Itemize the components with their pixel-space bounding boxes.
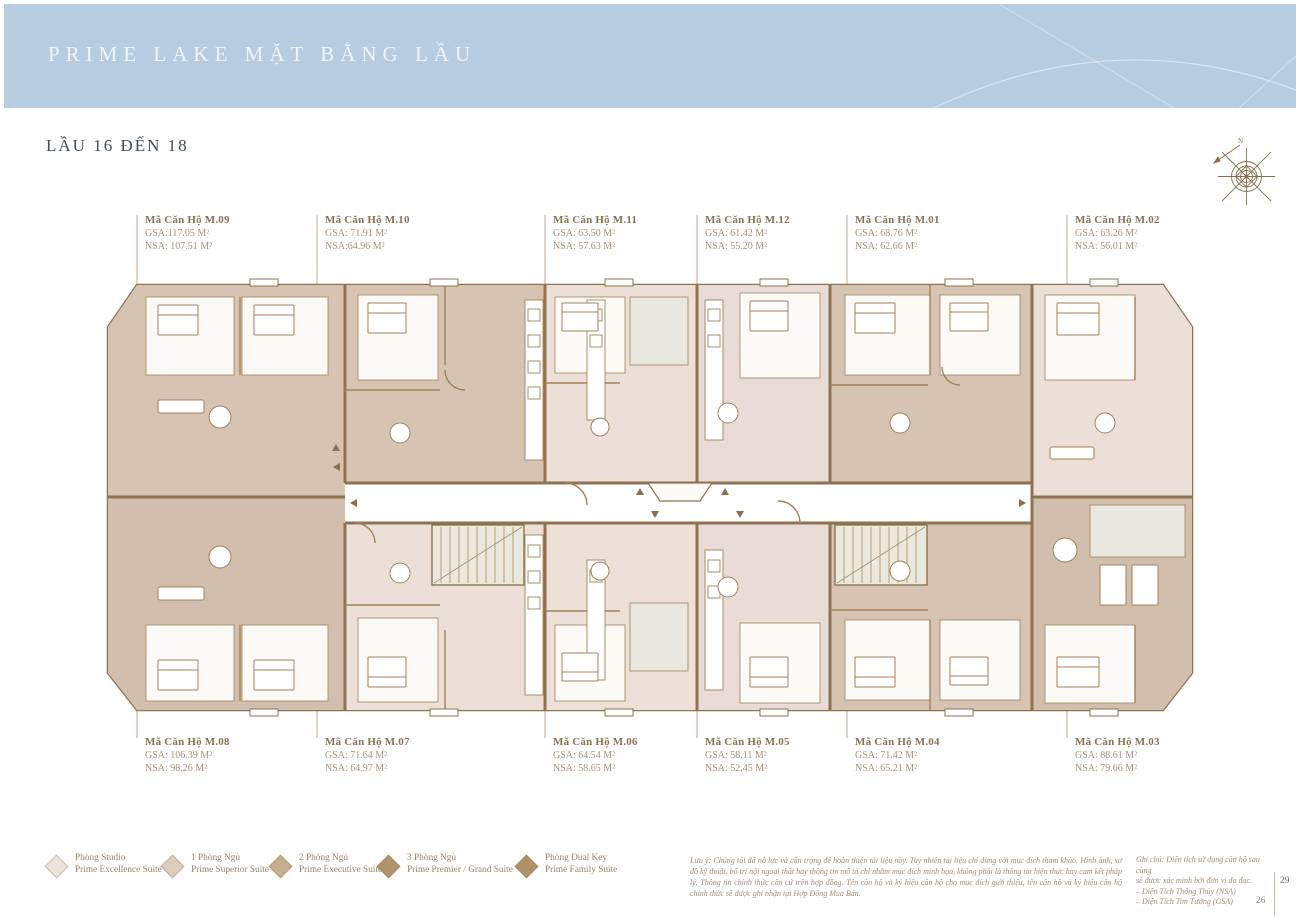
page-title: PRIME LAKE MẶT BẰNG LẦU <box>48 42 476 67</box>
unit-label-m11: Mã Căn Hộ M.11 GSA: 63.50 M² NSA: 57.63 … <box>553 213 713 253</box>
header-banner: PRIME LAKE MẶT BẰNG LẦU <box>4 4 1296 108</box>
stair-core-left <box>432 525 524 585</box>
legend-item-3br: 3 Phòng NgủPrime Premier / Grand Suite <box>376 853 513 876</box>
unit-label-m12: Mã Căn Hộ M.12 GSA: 61.42 M² NSA: 55.20 … <box>705 213 865 253</box>
unit-label-m02: Mã Căn Hộ M.02 GSA: 63.26 M² NSA: 56.01 … <box>1075 213 1235 253</box>
unit-label-m03: Mã Căn Hộ M.03 GSA: 88.61 M² NSA: 79.66 … <box>1075 735 1235 775</box>
compass-icon: N <box>1198 132 1290 216</box>
unit-label-m06: Mã Căn Hộ M.06 GSA: 64.54 M² NSA: 58.65 … <box>553 735 713 775</box>
unit-label-m01: Mã Căn Hộ M.01 GSA: 68.76 M² NSA: 62.66 … <box>855 213 1015 253</box>
unit-label-m10: Mã Căn Hộ M.10 GSA: 71.91 M² NSA:64.96 M… <box>325 213 485 253</box>
page-number-secondary: 26 <box>1256 896 1266 906</box>
compass-north-label: N <box>1238 137 1243 145</box>
lobby-vestibule <box>648 483 712 501</box>
disclaimer-text: Lưu ý: Chúng tôi đã nỗ lực và cẩn trọng … <box>690 855 1122 899</box>
floor-plan-drawing <box>100 205 1200 765</box>
unit-label-m04: Mã Căn Hộ M.04 GSA: 71.42 M² NSA: 65.21 … <box>855 735 1015 775</box>
brochure-page: PRIME LAKE MẶT BẰNG LẦU LẦU 16 ĐẾN 18 N <box>0 0 1300 919</box>
legend-diamond-icon <box>160 854 184 878</box>
page-number-divider <box>1274 872 1275 916</box>
unit-label-m05: Mã Căn Hộ M.05 GSA: 58.11 M² NSA: 52.45 … <box>705 735 865 775</box>
floor-range-subtitle: LẦU 16 ĐẾN 18 <box>46 136 189 156</box>
legend-diamond-icon <box>44 854 68 878</box>
legend-item-1br: 1 Phòng NgủPrime Superior Suite <box>160 853 269 876</box>
legend-diamond-icon <box>514 854 538 878</box>
legend-item-2br: 2 Phòng NgủPrime Executive Suite <box>268 853 382 876</box>
stair-core-right <box>835 525 927 585</box>
unit-label-m09: Mã Căn Hộ M.09 GSA:117.05 M² NSA: 107.51… <box>145 213 305 253</box>
legend-item-dualkey: Phòng Dual KeyPrime Family Suite <box>514 853 617 876</box>
unit-label-m07: Mã Căn Hộ M.07 GSA: 71.64 M² NSA: 64.97 … <box>325 735 485 775</box>
unit-label-m08: Mã Căn Hộ M.08 GSA: 106.39 M² NSA: 98.26… <box>145 735 305 775</box>
legend-diamond-icon <box>268 854 292 878</box>
legend-diamond-icon <box>376 854 400 878</box>
page-number-current: 29 <box>1280 876 1290 886</box>
legend-item-studio: Phòng StudioPrime Excellence Suite <box>44 853 162 876</box>
measurement-note: Ghi chú: Diện tích sử dụng căn hộ sau cù… <box>1136 855 1274 908</box>
floor-plan <box>100 205 1200 765</box>
